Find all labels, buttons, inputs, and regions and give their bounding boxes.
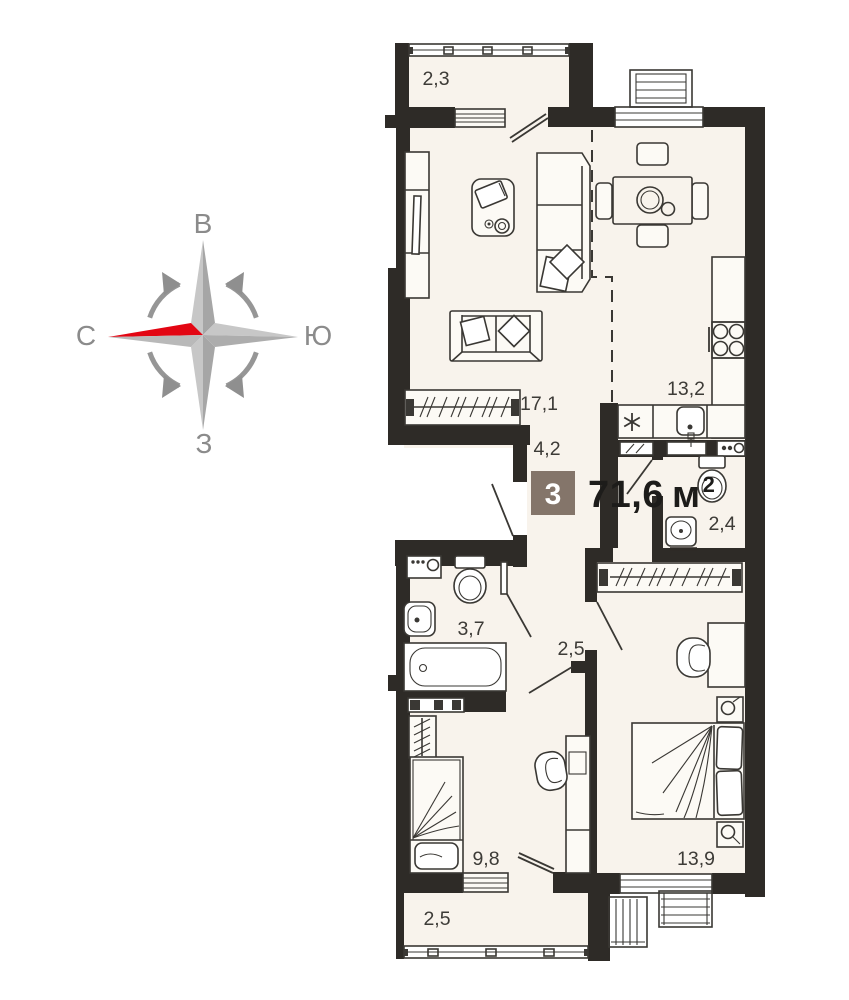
badge-number: 3 [545,478,562,511]
compass-label-top: В [194,208,213,239]
compass-rose: В Ю С З [76,208,332,459]
room-label-bedroom: 13,9 [677,848,715,870]
ac-basket-bottom-vertical [609,897,647,947]
compass-label-bottom: З [196,428,213,459]
bed-double [632,723,744,819]
pillow [716,727,742,770]
wardrobe-small [409,716,436,758]
plan-type-badge: 3 [531,471,575,515]
bedroom-window [620,874,712,893]
bed-single [410,757,463,873]
total-area-title: 71,6м2 [588,472,715,516]
floorplan-drawing: В Ю С З [0,0,849,1000]
pillow [716,771,743,816]
room-label-room: 9,8 [472,848,499,870]
low-cabinet [463,873,508,892]
bath-sink-icon [404,602,435,636]
ac-basket-top [630,70,692,107]
wardrobe-sliding [405,390,520,425]
room-label-wc: 2,4 [708,513,735,535]
compass-label-right: Ю [304,320,332,351]
room-label-hallway-2: 2,5 [557,638,584,660]
pillow [460,316,489,345]
ac-basket-bottom-horizontal [659,891,712,927]
sofa-corner [537,153,590,292]
tv-stand [405,152,429,298]
duct-blocks [408,698,464,712]
shoe-cabinet [455,109,505,127]
room-label-living-room: 17,1 [520,393,558,415]
balcony-bottom-glazing [404,946,588,958]
floorplan-page: В Ю С З [0,0,849,1000]
entry-door-swing [492,484,513,536]
room-label-kitchen: 13,2 [667,378,705,400]
nightstand [717,697,743,722]
wc-sink-icon [666,517,697,549]
room-label-hallway: 4,2 [533,438,560,460]
room-label-balcony-top: 2,3 [422,68,449,90]
total-area-unit: м [672,474,701,516]
coffee-table [472,179,514,236]
sofa-small [450,311,542,361]
compass-north-red-arrow [108,323,203,337]
nightstand [717,822,743,847]
compass-star [108,240,298,430]
balcony-top-glazing [409,44,569,56]
total-area-value: 71,6 [588,474,664,516]
compass-label-left: С [76,320,96,351]
kitchen-window [615,107,703,127]
wardrobe-sliding-bedroom [597,563,742,592]
desk [708,623,745,687]
washer-icon [407,556,441,578]
washing-machine-icon [717,441,745,456]
room-label-balcony-bottom: 2,5 [423,908,450,930]
total-area-power: 2 [703,472,716,497]
room-label-bathroom: 3,7 [457,618,484,640]
desk [566,736,590,873]
dining-table [613,177,692,224]
toilet-icon [454,556,486,603]
bathtub [404,643,506,691]
desk-chair [677,638,710,677]
